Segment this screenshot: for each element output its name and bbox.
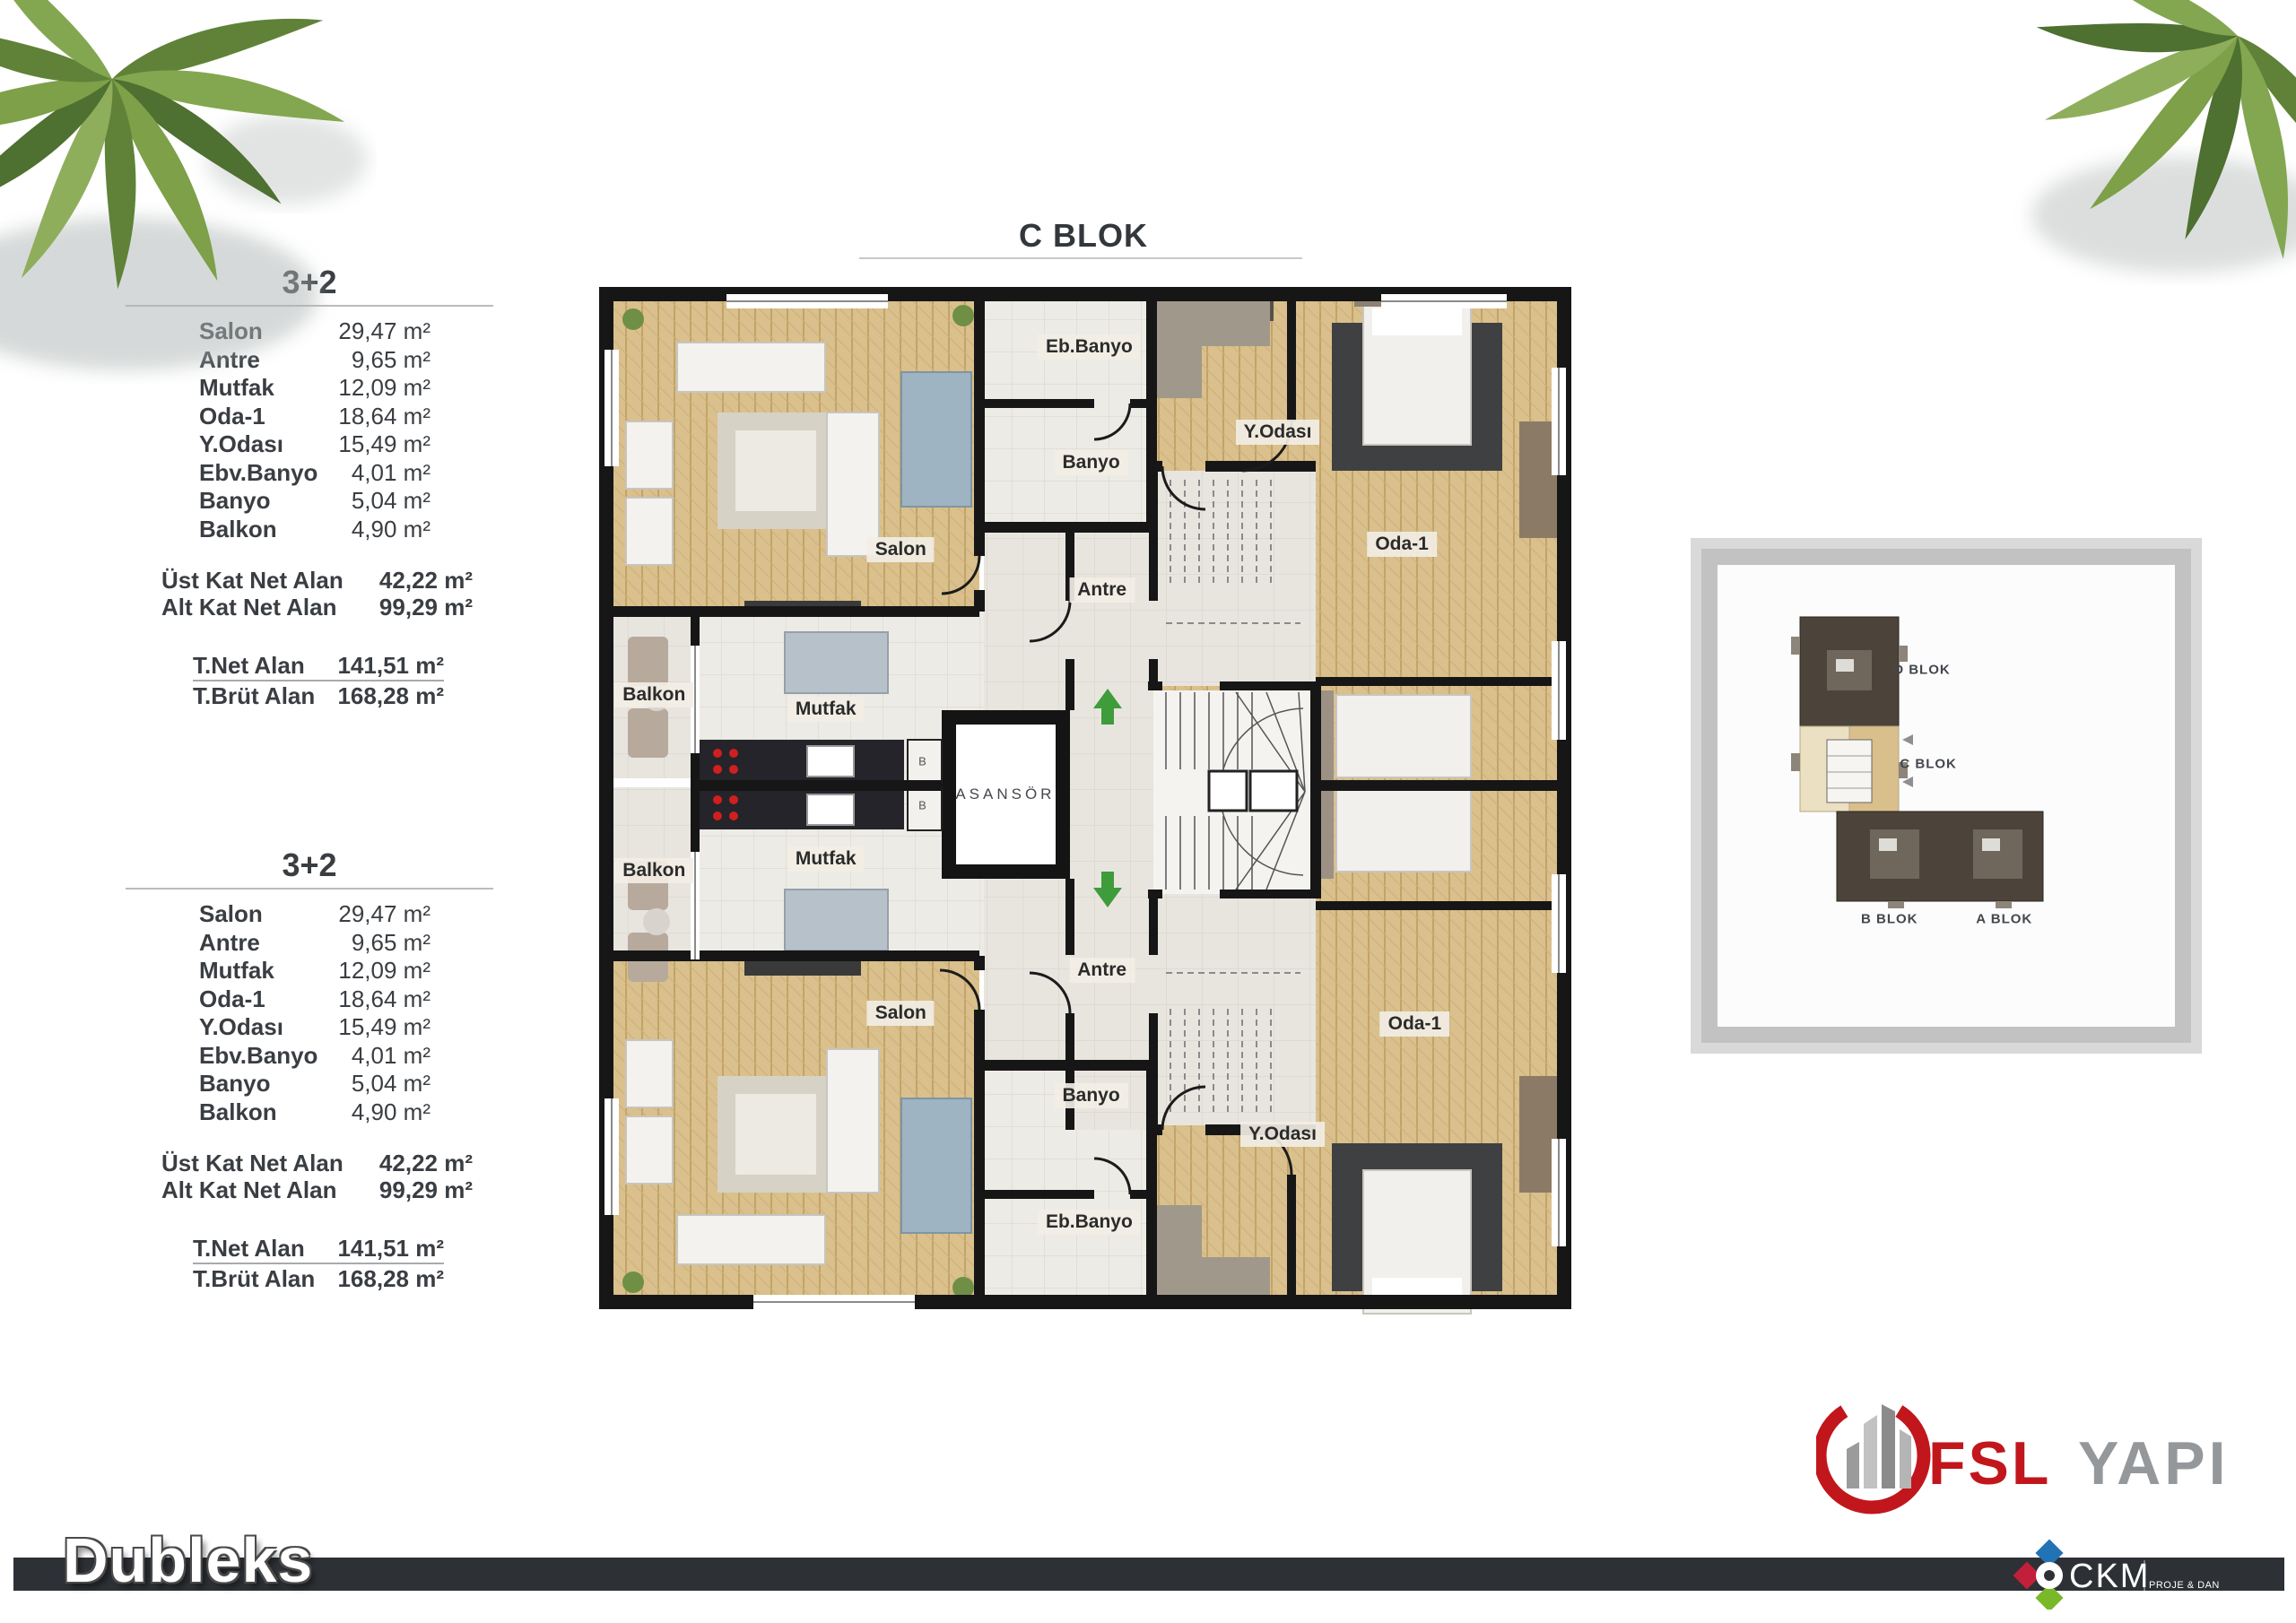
room-label-y-odasi-upper: Y.Odası bbox=[1236, 420, 1320, 445]
table-rule bbox=[126, 888, 493, 890]
room-label-antre-upper: Antre bbox=[1069, 577, 1135, 603]
area-row: T.Brüt Alan168,28 m² bbox=[126, 1264, 493, 1293]
area-row-label: Banyo bbox=[199, 487, 270, 515]
area-row-value: 12,09 m² bbox=[338, 957, 430, 985]
ckm-logo: CKM PROJE & DANIŞMANLIK bbox=[2013, 1533, 2220, 1610]
area-row-value: 4,01 m² bbox=[352, 1042, 430, 1070]
room-label-salon-lower: Salon bbox=[867, 1001, 935, 1026]
room-label-balkon-upper: Balkon bbox=[614, 682, 693, 707]
total-area-block: T.Net Alan141,51 m²T.Brüt Alan168,28 m² bbox=[126, 1234, 493, 1293]
area-row-value: 4,90 m² bbox=[352, 1098, 430, 1126]
area-row-label: Üst Kat Net Alan bbox=[161, 1150, 344, 1177]
area-row-value: 168,28 m² bbox=[337, 682, 444, 710]
area-row-value: 42,22 m² bbox=[379, 567, 473, 595]
area-row-value: 9,65 m² bbox=[352, 929, 430, 957]
area-row-label: Üst Kat Net Alan bbox=[161, 567, 344, 595]
area-row-value: 18,64 m² bbox=[338, 985, 430, 1013]
area-row: Banyo5,04 m² bbox=[126, 487, 493, 516]
area-row: Balkon4,90 m² bbox=[126, 516, 493, 544]
area-row-label: T.Net Alan bbox=[193, 1235, 305, 1263]
area-row: Ebv.Banyo4,01 m² bbox=[126, 1042, 493, 1071]
area-row: Y.Odası15,49 m² bbox=[126, 1013, 493, 1042]
room-label-mutfak-upper: Mutfak bbox=[787, 697, 865, 722]
block-label-a-blok: A BLOK bbox=[1976, 912, 2032, 927]
area-row: Alt Kat Net Alan99,29 m² bbox=[126, 594, 493, 621]
area-row-value: 15,49 m² bbox=[338, 430, 430, 458]
block-label-c-blok: C BLOK bbox=[1900, 756, 1957, 771]
area-row-label: Banyo bbox=[199, 1070, 270, 1098]
area-row-value: 42,22 m² bbox=[379, 1150, 473, 1177]
room-area-list: Salon29,47 m²Antre9,65 m²Mutfak12,09 m²O… bbox=[126, 900, 493, 1126]
area-row: Mutfak12,09 m² bbox=[126, 957, 493, 985]
area-row-value: 5,04 m² bbox=[352, 487, 430, 515]
area-row-label: Antre bbox=[199, 929, 260, 957]
room-label-oda-1-lower: Oda-1 bbox=[1380, 1011, 1450, 1037]
area-row-value: 141,51 m² bbox=[337, 652, 444, 680]
area-row-value: 15,49 m² bbox=[338, 1013, 430, 1041]
area-row-value: 5,04 m² bbox=[352, 1070, 430, 1098]
area-row: Oda-118,64 m² bbox=[126, 403, 493, 431]
room-label-asansor: ASANSÖR bbox=[955, 785, 1055, 803]
fsl-yapi-logo: FSL YAPI bbox=[1816, 1370, 2256, 1536]
area-row-label: Y.Odası bbox=[199, 430, 283, 458]
area-row-label: Salon bbox=[199, 900, 263, 928]
area-row: Balkon4,90 m² bbox=[126, 1098, 493, 1127]
palm-decoration-right bbox=[1969, 0, 2296, 309]
area-row: Üst Kat Net Alan42,22 m² bbox=[126, 567, 493, 594]
area-row-label: Oda-1 bbox=[199, 403, 265, 430]
area-row: Salon29,47 m² bbox=[126, 900, 493, 929]
room-label-antre-lower: Antre bbox=[1069, 958, 1135, 983]
floor-plan: Eb.BanyoBanyoSalonAntreY.OdasıOda-1Balko… bbox=[592, 287, 1578, 1327]
floor-net-area-list: Üst Kat Net Alan42,22 m²Alt Kat Net Alan… bbox=[126, 567, 493, 621]
area-row-value: 99,29 m² bbox=[379, 1176, 473, 1204]
room-label-dolap-b-upper: B bbox=[918, 754, 926, 768]
area-row-label: Ebv.Banyo bbox=[199, 459, 317, 487]
area-row-value: 18,64 m² bbox=[338, 403, 430, 430]
area-row-label: Oda-1 bbox=[199, 985, 265, 1013]
area-row-value: 4,90 m² bbox=[352, 516, 430, 543]
floor-net-area-list: Üst Kat Net Alan42,22 m²Alt Kat Net Alan… bbox=[126, 1150, 493, 1203]
site-plan-labels: D BLOKC BLOKB BLOKA BLOK bbox=[1718, 565, 2175, 1027]
block-label-b-blok: B BLOK bbox=[1861, 912, 1918, 927]
plan-type-label: Dubleks bbox=[63, 1524, 313, 1596]
area-row-value: 168,28 m² bbox=[337, 1265, 444, 1293]
ckm-pinwheel-icon bbox=[2013, 1539, 2064, 1610]
footer-bar bbox=[13, 1558, 2284, 1591]
palm-decoration-left bbox=[0, 0, 377, 384]
brochure-page: C BLOK 3+2 Salon29,47 m²Antre9,65 m²Mutf… bbox=[0, 0, 2296, 1623]
area-row: T.Net Alan141,51 m² bbox=[126, 1234, 493, 1263]
page-title: C BLOK bbox=[859, 217, 1308, 255]
room-label-mutfak-lower: Mutfak bbox=[787, 846, 865, 872]
area-row-value: 99,29 m² bbox=[379, 594, 473, 621]
room-label-y-odasi-lower: Y.Odası bbox=[1240, 1122, 1325, 1147]
area-row: T.Net Alan141,51 m² bbox=[126, 651, 493, 680]
site-plan-frame: D BLOKC BLOKB BLOKA BLOK bbox=[1701, 549, 2191, 1043]
area-row: Üst Kat Net Alan42,22 m² bbox=[126, 1150, 493, 1176]
brand-primary: FSL bbox=[1928, 1429, 2051, 1497]
room-label-banyo-upper: Banyo bbox=[1055, 450, 1128, 475]
area-row-label: T.Brüt Alan bbox=[193, 682, 315, 710]
room-label-balkon-lower: Balkon bbox=[614, 858, 693, 883]
area-row-label: Mutfak bbox=[199, 957, 274, 985]
area-row-label: Y.Odası bbox=[199, 1013, 283, 1041]
area-row-value: 4,01 m² bbox=[352, 459, 430, 487]
area-row: Y.Odası15,49 m² bbox=[126, 430, 493, 459]
room-label-dolap-b-lower: B bbox=[918, 798, 926, 811]
area-row-label: Balkon bbox=[199, 1098, 277, 1126]
area-row-value: 141,51 m² bbox=[337, 1235, 444, 1263]
block-label-d-blok: D BLOK bbox=[1893, 662, 1951, 677]
room-label-eb-banyo-upper: Eb.Banyo bbox=[1038, 334, 1141, 360]
area-row: Ebv.Banyo4,01 m² bbox=[126, 459, 493, 488]
area-row-label: T.Net Alan bbox=[193, 652, 305, 680]
area-row-label: T.Brüt Alan bbox=[193, 1265, 315, 1293]
brand-secondary: YAPI bbox=[2078, 1429, 2229, 1497]
unit-table-lower: 3+2 Salon29,47 m²Antre9,65 m²Mutfak12,09… bbox=[126, 825, 493, 1293]
area-row-value: 29,47 m² bbox=[338, 900, 430, 928]
crescent-icon bbox=[1816, 1384, 1944, 1527]
area-row: Antre9,65 m² bbox=[126, 929, 493, 958]
unit-type-title: 3+2 bbox=[126, 846, 493, 885]
consultant-subtitle: PROJE & DANIŞMANLIK bbox=[2149, 1580, 2220, 1591]
area-row-label: Ebv.Banyo bbox=[199, 1042, 317, 1070]
total-area-block: T.Net Alan141,51 m²T.Brüt Alan168,28 m² bbox=[126, 651, 493, 710]
area-row: T.Brüt Alan168,28 m² bbox=[126, 681, 493, 710]
area-row: Oda-118,64 m² bbox=[126, 985, 493, 1014]
area-row: Alt Kat Net Alan99,29 m² bbox=[126, 1176, 493, 1203]
consultant-name: CKM bbox=[2069, 1558, 2150, 1595]
room-label-oda-1-upper: Oda-1 bbox=[1367, 532, 1437, 557]
area-row: Banyo5,04 m² bbox=[126, 1070, 493, 1098]
room-label-banyo-lower: Banyo bbox=[1055, 1083, 1128, 1108]
floor-plan-labels: Eb.BanyoBanyoSalonAntreY.OdasıOda-1Balko… bbox=[592, 287, 1578, 1327]
room-label-eb-banyo-lower: Eb.Banyo bbox=[1038, 1210, 1141, 1235]
area-row-label: Alt Kat Net Alan bbox=[161, 594, 337, 621]
room-label-salon-upper: Salon bbox=[867, 537, 935, 562]
site-plan-inset: D BLOKC BLOKB BLOKA BLOK bbox=[1691, 538, 2202, 1054]
area-row-label: Balkon bbox=[199, 516, 277, 543]
area-row-label: Alt Kat Net Alan bbox=[161, 1176, 337, 1204]
title-underline bbox=[859, 257, 1302, 259]
